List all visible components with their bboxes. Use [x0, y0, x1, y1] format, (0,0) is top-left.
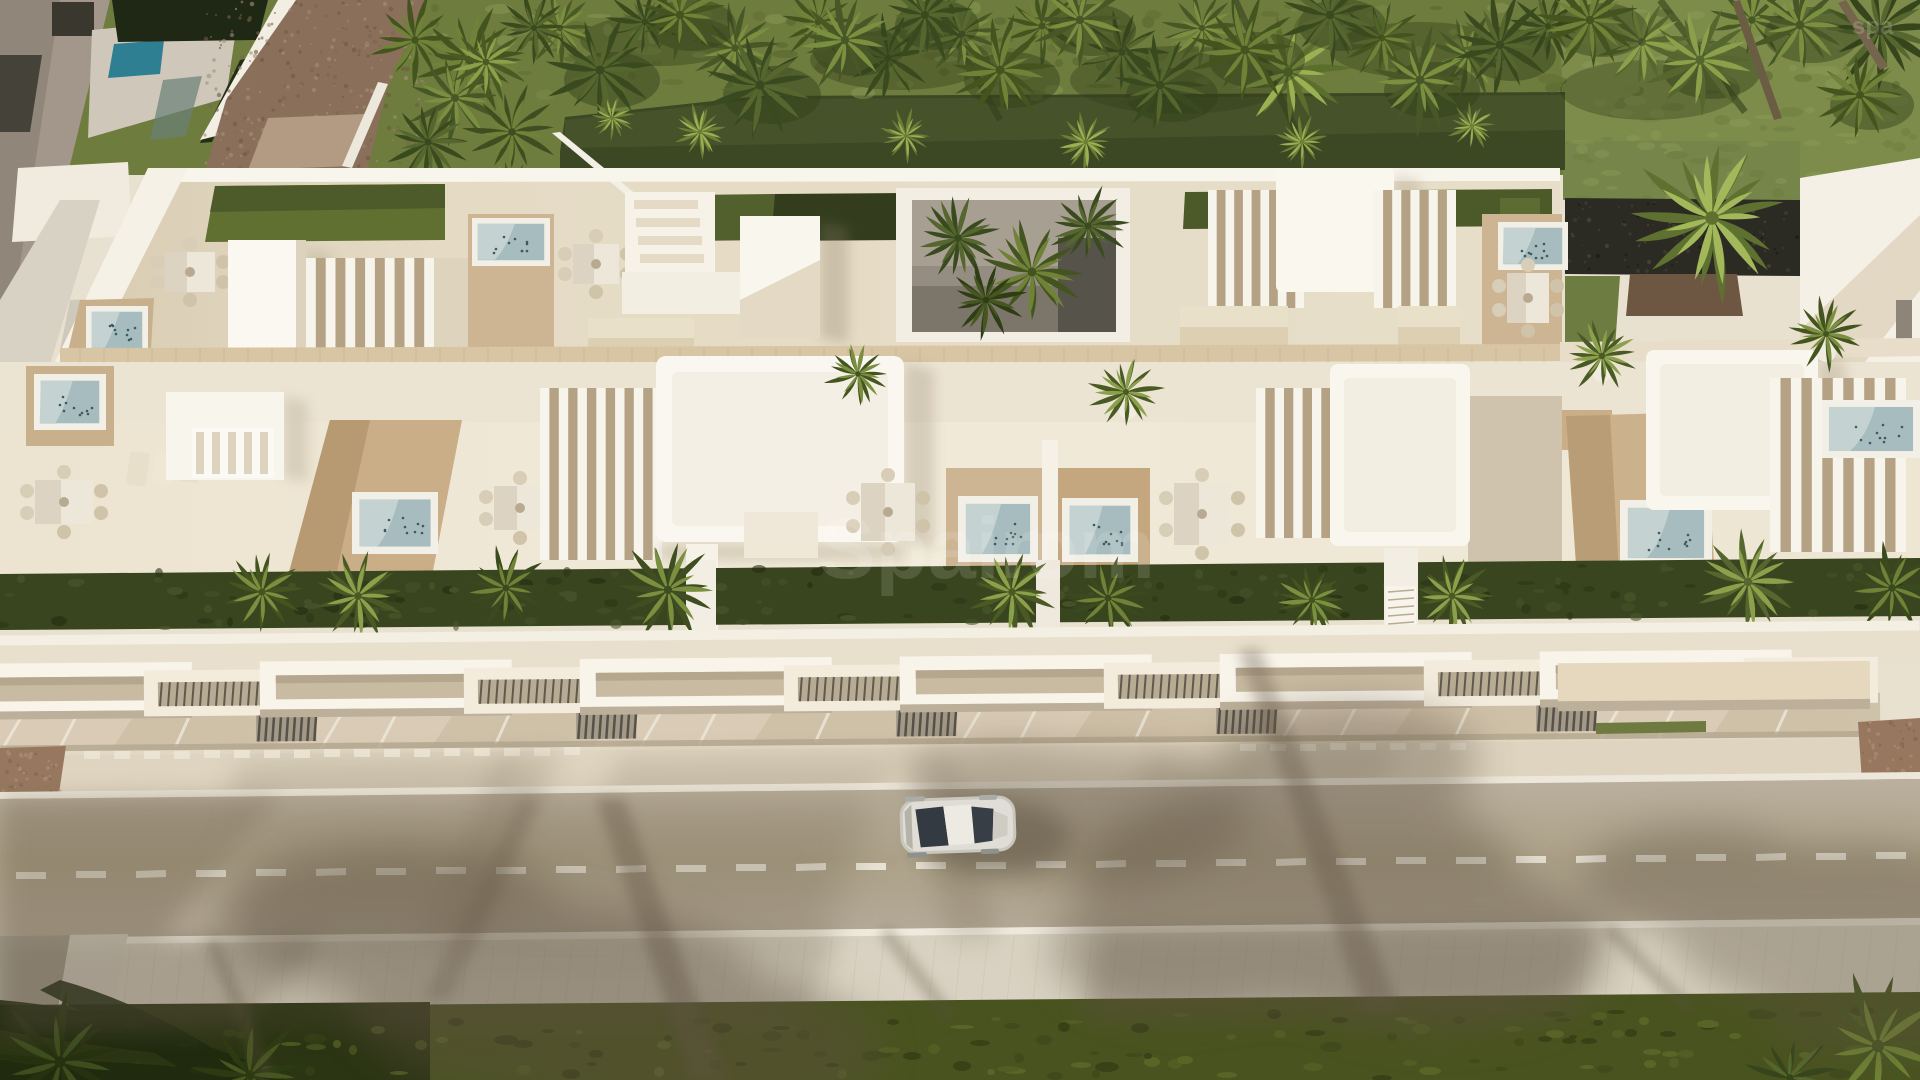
svg-text:om: om: [1026, 501, 1155, 597]
svg-text:Spain: Spain: [818, 501, 1052, 597]
svg-text:spa: spa: [1852, 13, 1894, 40]
